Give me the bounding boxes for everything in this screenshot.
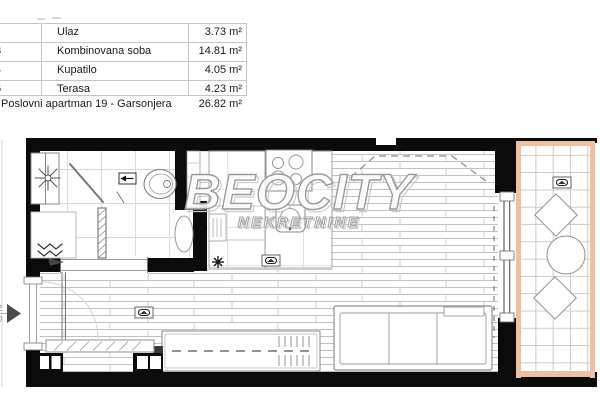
dimension-fragment: 0: [0, 314, 2, 324]
floorplan-screenshot: Ulaz 3.73 m² 3 Kombinovana soba 14.81 m²…: [0, 0, 600, 400]
watermark-line2: NEKRETNINE NEKRETNINE: [238, 214, 362, 233]
floorplan-drawing: 2 0: [0, 0, 600, 400]
sofa: [334, 306, 492, 370]
washing-machine: [31, 212, 76, 266]
pillar: [133, 353, 163, 373]
room-tag: [553, 177, 571, 188]
room-tag: [135, 307, 153, 318]
bathroom-door-leaf: [98, 208, 106, 258]
wall-pier-top-right: [495, 138, 517, 193]
svg-text:NEKRETNINE: NEKRETNINE: [238, 214, 361, 231]
terrace-table: [547, 236, 585, 274]
wall-bottom: [26, 372, 597, 387]
svg-text:BEOCITY: BEOCITY: [184, 164, 417, 220]
bathroom-door-opening: [60, 256, 148, 274]
wardrobe-shelf: [46, 340, 154, 352]
bed: [153, 331, 320, 371]
wall-notch: [376, 137, 396, 145]
dimension-fragment: 2: [0, 303, 2, 313]
dimension-lines: [0, 140, 7, 387]
pillar: [37, 353, 63, 373]
wall-top: [26, 138, 512, 151]
watermark: BEOCITY BEOCITY NEKRETNINE NEKRETNINE: [184, 164, 419, 233]
sliding-glass-door: [500, 192, 514, 322]
entrance-arrow-icon: [7, 304, 21, 323]
room-tag: [262, 255, 280, 266]
